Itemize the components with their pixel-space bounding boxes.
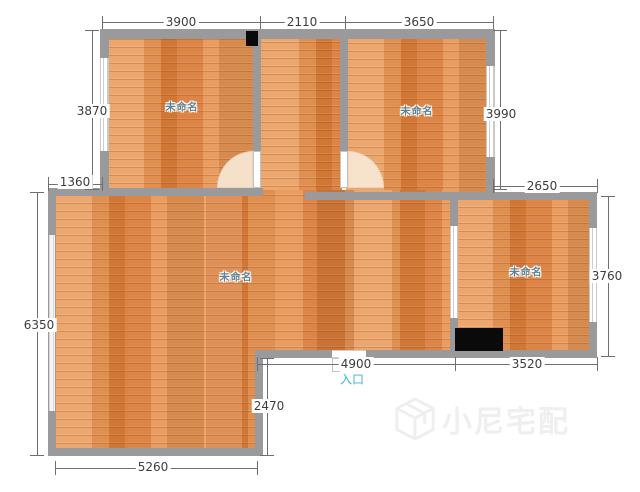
dimension-right-lower-label: 3760 [590,269,625,283]
dimension-tick [55,461,56,475]
dimension-tick [493,179,494,193]
wall-hall-room2 [340,29,348,153]
dimension-top-2-label: 2110 [285,15,320,29]
dimension-tick [85,30,99,31]
dimension-tick [257,357,258,371]
watermark-text: 小尼宅配 [442,397,570,441]
dimension-tick [601,196,615,197]
dimension-bottom-line [257,364,597,365]
opening-living-room4 [450,226,458,318]
dimension-tick [260,358,274,359]
dimension-tick [102,177,103,191]
watermark-cube-icon [394,396,436,442]
dimension-tick [102,16,103,29]
dimension-top-3-label: 3650 [402,15,437,29]
wall-bottom [255,350,597,358]
dimension-bottom-left-label: 5260 [136,460,171,474]
dimension-left-step-label: 1360 [58,175,93,189]
dimension-right-step-label: 2650 [525,179,560,193]
dimension-tick [260,16,261,29]
flue-block [246,31,258,46]
dimension-tick [597,357,598,371]
dimension-bottom-right-label: 3520 [510,357,545,371]
room-4-label: 未命名 [510,264,543,279]
dimension-tick [85,189,99,190]
dimension-bottom-middle-label: 4900 [339,357,374,371]
dimension-right-upper-label: 3990 [484,107,519,121]
dimension-top-1-label: 3900 [164,15,199,29]
dimension-tick [455,357,456,371]
dimension-tick [601,356,615,357]
dimension-tick [30,455,44,456]
cabinet-block [455,328,503,351]
dimension-tick [260,455,274,456]
wall-top [100,29,495,39]
living-room-floor-lower [54,350,257,452]
dimension-tick [493,30,507,31]
dimension-tick [48,177,49,191]
dimension-bottom-notch-label: 2470 [252,399,287,413]
dimension-tick [345,16,346,29]
hallway-floor [261,36,342,195]
wall-living-top [48,188,263,196]
watermark: 小尼宅配 [394,396,570,442]
dimension-tick [493,189,507,190]
door-leaf-room1 [253,151,261,188]
dimension-tick [30,192,44,193]
dimension-left-upper-label: 3870 [75,104,110,118]
dimension-tick [493,16,494,29]
dimension-left-lower-label: 6350 [22,318,57,332]
floor-plan-canvas: 小尼宅配 3900 2110 3650 3870 1 [0,0,640,492]
wall-room1-hall [253,29,261,153]
living-room-floor [54,190,454,356]
dimension-tick [257,461,258,475]
door-leaf-room2 [340,151,348,188]
entrance-label: 入口 [336,373,368,388]
room-1-label: 未命名 [166,99,199,114]
dimension-tick [597,179,598,193]
room-3-label: 未命名 [220,269,253,284]
wall-living-bottom [48,448,263,456]
room-2-label: 未命名 [401,103,434,118]
